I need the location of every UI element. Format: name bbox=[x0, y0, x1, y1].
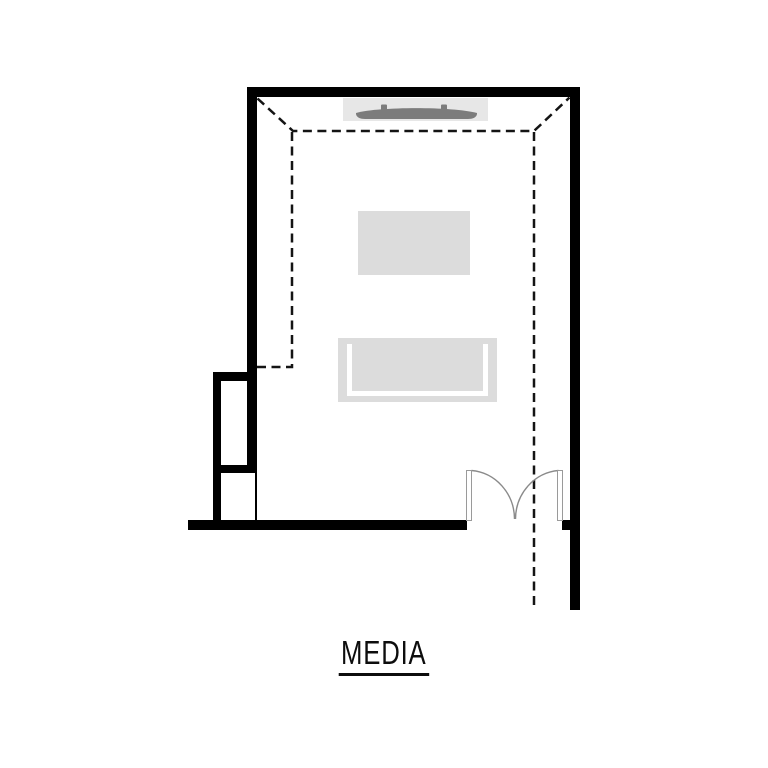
tv-mount-right bbox=[441, 105, 447, 111]
tv-icon bbox=[356, 108, 477, 119]
floor-plan-canvas: MEDIA bbox=[0, 0, 768, 768]
tv-mount-left bbox=[381, 105, 387, 111]
door-leaf-right bbox=[557, 470, 563, 521]
door-swing-arc-left bbox=[472, 471, 515, 520]
room-label-container: MEDIA bbox=[0, 636, 768, 676]
door-leaf-left bbox=[466, 470, 472, 521]
door-swing-arc-right bbox=[516, 471, 559, 520]
tray-ceiling-left-drop-line bbox=[256, 132, 292, 367]
room-label: MEDIA bbox=[339, 636, 429, 676]
